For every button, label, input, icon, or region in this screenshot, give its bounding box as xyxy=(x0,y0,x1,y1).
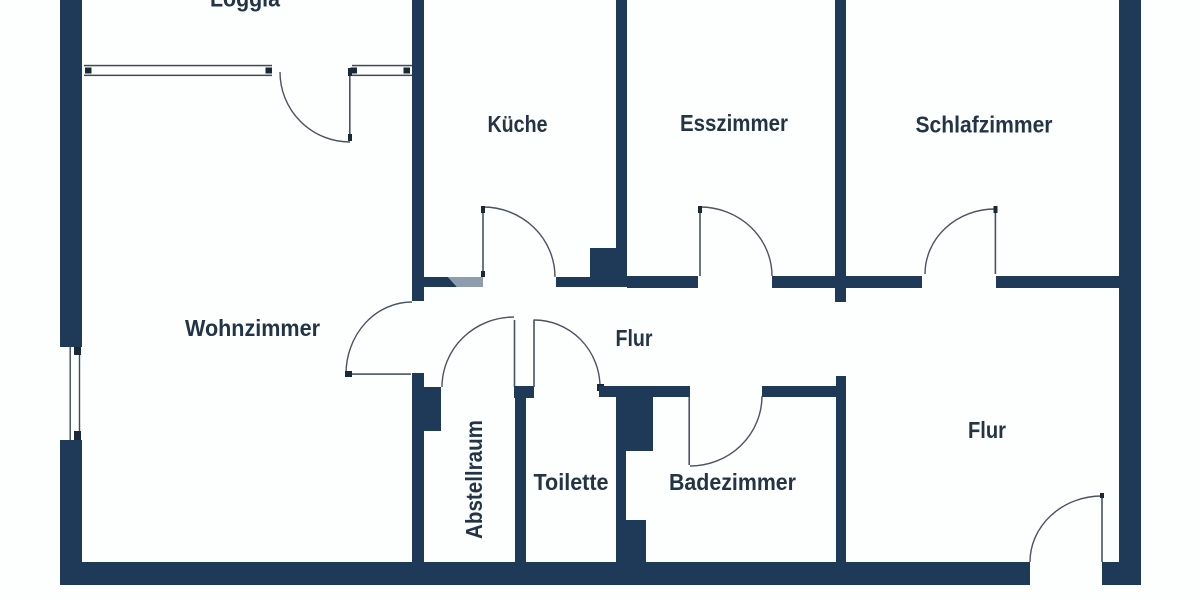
svg-text:Esszimmer: Esszimmer xyxy=(680,110,788,136)
svg-text:Toilette: Toilette xyxy=(534,469,609,495)
svg-text:Abstellraum: Abstellraum xyxy=(461,420,487,539)
svg-text:Wohnzimmer: Wohnzimmer xyxy=(185,315,320,341)
svg-text:Loggia: Loggia xyxy=(210,0,280,12)
svg-text:Flur: Flur xyxy=(616,325,653,351)
svg-text:Schlafzimmer: Schlafzimmer xyxy=(916,112,1053,138)
svg-text:Badezimmer: Badezimmer xyxy=(669,469,796,495)
svg-text:Flur: Flur xyxy=(968,417,1006,443)
svg-text:Küche: Küche xyxy=(488,111,548,137)
